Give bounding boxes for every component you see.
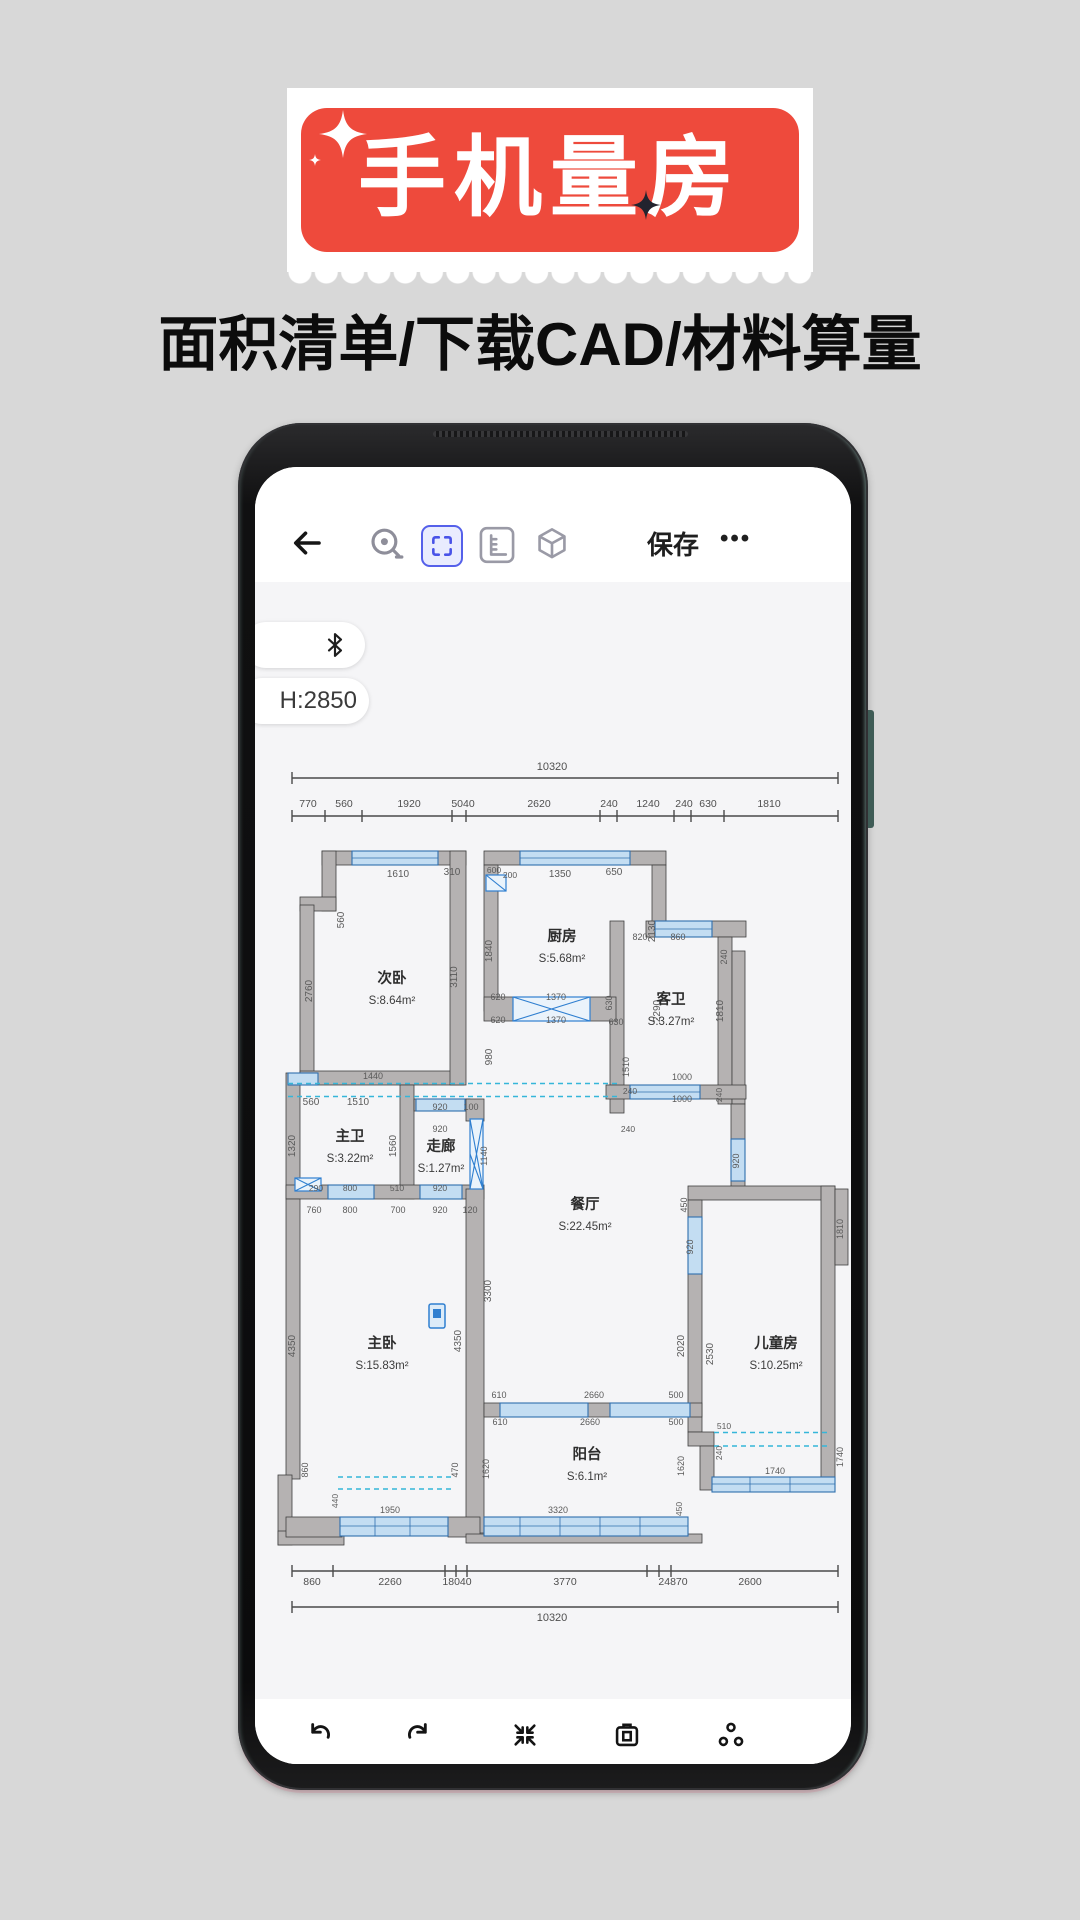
dim-label: 610: [491, 1390, 506, 1400]
app-top-toolbar: 保存 •••: [255, 467, 851, 582]
banner-card: 手机量房: [287, 88, 813, 272]
beam-lines: [288, 1084, 828, 1490]
dim-label: 240: [719, 949, 729, 964]
room-label: 次卧: [378, 969, 407, 987]
ruler-tool-button[interactable]: [478, 525, 516, 565]
height-badge[interactable]: H:2850: [255, 678, 369, 724]
dim-label: 4350: [453, 1329, 464, 1352]
dim-label: 860: [300, 1462, 310, 1477]
dim-label: 240: [623, 1086, 637, 1096]
dim-label: 860: [670, 932, 685, 942]
dim-label: 800: [343, 1183, 357, 1193]
dim-label: 1620: [676, 1456, 686, 1476]
dim-label: 2130: [647, 919, 658, 942]
dim-label: 2660: [580, 1417, 600, 1427]
dim-label: 560: [335, 798, 353, 810]
dim-label: 290: [309, 1183, 323, 1193]
ruler-top: [292, 772, 838, 822]
room-label: S:3.22m²: [327, 1153, 374, 1165]
dim-label: 240: [600, 798, 618, 810]
banner-title: 手机量房: [358, 134, 742, 222]
dim-label: 1350: [549, 869, 572, 880]
dim-label: 760: [306, 1205, 321, 1215]
room-label: S:22.45m²: [558, 1221, 611, 1233]
phone-mockup: 保存 ••• H:2850: [238, 423, 868, 1790]
dim-label: 1810: [757, 798, 781, 810]
dim-label: 1610: [387, 869, 410, 880]
dim-label: 1510: [347, 1097, 370, 1108]
back-button[interactable]: [289, 525, 325, 561]
height-value: H:2850: [280, 687, 357, 715]
dim-label: 1320: [287, 1134, 298, 1157]
dim-label: 1920: [397, 798, 421, 810]
dim-label: 1440: [363, 1071, 383, 1081]
dim-label: 470: [450, 1462, 460, 1477]
dim-label: 10320: [537, 1612, 568, 1624]
dim-label: 2530: [705, 1342, 716, 1365]
more-menu-button[interactable]: •••: [720, 525, 751, 553]
dim-label: 860: [303, 1576, 321, 1588]
cube-3d-button[interactable]: [533, 525, 571, 563]
dim-label: 3770: [553, 1576, 577, 1588]
active-tool-highlight: [421, 525, 463, 567]
phone-screen: 保存 ••• H:2850: [255, 467, 851, 1764]
floorplan-canvas[interactable]: H:2850: [255, 582, 851, 1699]
tape-measure-icon: [367, 525, 405, 563]
dim-label: 510: [390, 1183, 404, 1193]
dim-label: 500: [668, 1417, 683, 1427]
dim-label: 240: [714, 1088, 724, 1102]
undo-button[interactable]: [303, 1721, 333, 1752]
page: { "banner": { "title": "手机量房", "subtitle…: [0, 0, 1080, 1920]
dim-label: 3110: [449, 966, 460, 988]
dim-label: 510: [717, 1421, 731, 1431]
dim-label: 4350: [287, 1334, 298, 1357]
room-label: S:8.64m²: [369, 995, 416, 1007]
room-label: 主卫: [336, 1127, 365, 1145]
room-label: 厨房: [548, 927, 577, 945]
dim-label: 450: [674, 1502, 684, 1516]
dim-label: 450: [679, 1197, 689, 1212]
dim-label: 920: [433, 1183, 447, 1193]
room-label: S:15.83m²: [355, 1360, 408, 1372]
collapse-view-button[interactable]: [511, 1721, 539, 1754]
ruler-icon: [478, 525, 516, 565]
room-label: S:10.25m²: [749, 1360, 802, 1372]
room-label: 客卫: [656, 990, 686, 1008]
dim-label: 560: [336, 911, 347, 928]
dim-label: 240: [675, 798, 693, 810]
dim-label: 310: [444, 867, 461, 878]
banner-red-box: 手机量房: [301, 108, 799, 252]
redo-button[interactable]: [405, 1721, 435, 1752]
room-label: 餐厅: [571, 1195, 600, 1213]
dim-label: 1950: [380, 1505, 400, 1515]
app-bottom-toolbar: [255, 1699, 851, 1764]
speaker-grille: [433, 431, 688, 437]
dim-label: 2600: [738, 1576, 762, 1588]
dim-label: 650: [606, 867, 623, 878]
dim-label: 1000: [672, 1072, 692, 1082]
dim-label: 630: [699, 798, 717, 810]
dim-label: 1560: [388, 1134, 399, 1157]
room-label: 主卧: [368, 1334, 397, 1352]
dim-label: 800: [342, 1205, 357, 1215]
collapse-icon: [511, 1721, 539, 1749]
banner-subtitle: 面积清单/下载CAD/材料算量: [0, 296, 1080, 383]
dim-label: 240: [714, 1446, 724, 1460]
dim-label: 1370: [546, 992, 566, 1002]
dim-label: 1740: [765, 1466, 785, 1476]
dim-label: 700: [390, 1205, 405, 1215]
dim-label: 920: [432, 1124, 447, 1134]
sparkle-dot-icon: [309, 154, 321, 166]
dim-label: 920: [685, 1239, 695, 1254]
dim-label: 1620: [481, 1459, 491, 1479]
dim-label: 1740: [835, 1447, 845, 1467]
share-nodes-button[interactable]: [717, 1721, 745, 1754]
dim-label: 100: [463, 1102, 478, 1112]
undo-icon: [303, 1721, 333, 1747]
dim-label: 630: [604, 995, 614, 1010]
screenshot-button[interactable]: [613, 1721, 641, 1754]
dim-label: 2760: [304, 979, 315, 1002]
room-label: 儿童房: [753, 1334, 798, 1352]
dim-label: 18040: [442, 1576, 471, 1588]
dim-label: 820: [632, 932, 647, 942]
back-arrow-icon: [289, 525, 325, 561]
dim-label: 10320: [537, 761, 568, 773]
ruler-bottom: [292, 1565, 838, 1613]
floorplan-svg[interactable]: 1032077056019205040262024012402406301810…: [255, 582, 851, 1699]
dim-label: 3320: [548, 1505, 568, 1515]
dim-label: 920: [432, 1205, 447, 1215]
dim-label: 120: [462, 1205, 477, 1215]
room-label: 走廊: [427, 1137, 456, 1155]
room-label: S:1.27m²: [418, 1163, 465, 1175]
dim-label: 24870: [658, 1576, 687, 1588]
room-label: S:6.1m²: [567, 1471, 607, 1483]
dim-label: 620: [490, 1015, 505, 1025]
dim-label: 610: [492, 1417, 507, 1427]
redo-icon: [405, 1721, 435, 1747]
dim-label: 1510: [621, 1057, 631, 1077]
dim-label: 2260: [378, 1576, 402, 1588]
dim-label: 620: [490, 992, 505, 1002]
dim-label: 5040: [451, 798, 475, 810]
room-label: S:3.27m²: [648, 1016, 695, 1028]
dim-label: 1840: [484, 939, 495, 962]
dim-label: 920: [731, 1153, 741, 1168]
nodes-share-icon: [717, 1721, 745, 1749]
dim-label: 1240: [636, 798, 660, 810]
dim-label: 2620: [527, 798, 551, 810]
measure-tool-button[interactable]: [367, 525, 405, 563]
save-button[interactable]: 保存: [647, 525, 699, 562]
selection-frame-icon: [429, 533, 455, 559]
cube-3d-icon: [533, 525, 571, 563]
dim-label: 3300: [483, 1279, 494, 1302]
dim-label: 2660: [584, 1390, 604, 1400]
dim-label: 1370: [546, 1015, 566, 1025]
dim-label: 200: [503, 870, 517, 880]
dim-label: 770: [299, 798, 317, 810]
dim-label: 600: [487, 865, 501, 875]
selection-tool-button-active[interactable]: [421, 525, 463, 567]
dim-label: 1000: [672, 1094, 692, 1104]
room-label: 阳台: [573, 1445, 602, 1463]
dim-label: 1140: [479, 1146, 489, 1165]
dim-label: 240: [621, 1124, 635, 1134]
dim-label: 630: [608, 1017, 623, 1027]
door-icon: [429, 1304, 445, 1328]
dim-label: 560: [303, 1097, 320, 1108]
dim-label: 440: [330, 1494, 340, 1508]
dim-label: 980: [484, 1048, 495, 1065]
dim-label: 2020: [676, 1334, 687, 1357]
dim-label: 920: [432, 1102, 447, 1112]
dim-label: 1810: [835, 1219, 845, 1239]
dim-label: 1810: [715, 999, 726, 1022]
room-label: S:5.68m²: [539, 953, 586, 965]
bluetooth-badge[interactable]: [255, 622, 365, 668]
dim-label: 500: [668, 1390, 683, 1400]
phone-side-button: [868, 710, 874, 828]
screenshot-camera-icon: [613, 1721, 641, 1749]
bluetooth-icon: [323, 632, 347, 658]
